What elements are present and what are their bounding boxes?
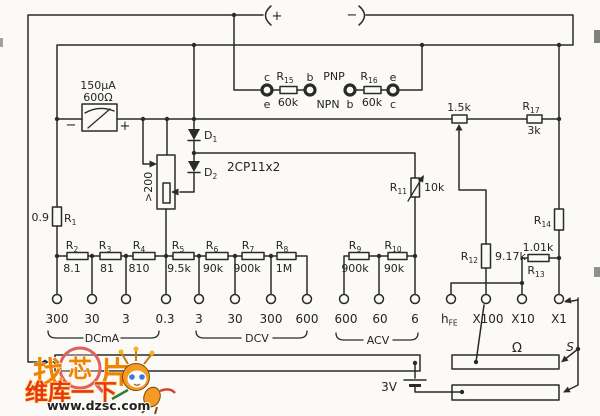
junction-dot (164, 254, 168, 258)
diode-d1-icon (188, 129, 200, 140)
shunt-pot-value: >200 (142, 172, 155, 202)
minus-jack-label: − (347, 8, 358, 23)
terminal-label: X1 (551, 312, 567, 326)
hfe-terminal-label: hFE (441, 312, 458, 328)
meter-needle (88, 109, 110, 128)
socket2-top-label: b (307, 71, 314, 84)
plus-jack-icon (266, 6, 272, 25)
r7-label: R7 (242, 239, 255, 254)
terminal-0p3ma (162, 295, 171, 304)
r17-label: R17 (522, 100, 539, 115)
junction-dot (197, 254, 201, 258)
acv-group-label: ACV (367, 334, 390, 347)
watermark-url: www.dzsc.com (47, 398, 150, 413)
r13-value: 1.01k (523, 241, 554, 254)
terminal-label: 0.3 (155, 312, 174, 326)
r14-label: R14 (534, 214, 551, 229)
terminal-6vac (411, 295, 420, 304)
r6-label: R6 (206, 239, 219, 254)
meter-pos-label: + (120, 119, 131, 134)
r7-value: 900k (233, 262, 261, 275)
terminal-hfe (447, 295, 456, 304)
terminal-label: 300 (46, 312, 69, 326)
r4-value: 810 (129, 262, 150, 275)
terminal-label: 600 (296, 312, 319, 326)
r16-label: R16 (360, 70, 377, 85)
r2-value: 8.1 (63, 262, 81, 275)
ohm-label: Ω (512, 341, 522, 356)
terminal-600vac (340, 295, 349, 304)
acv-brace-right (393, 333, 418, 340)
junction-dot (55, 254, 59, 258)
switch-label: S (566, 340, 574, 354)
terminal-label: 3 (195, 312, 203, 326)
scan-artifact (594, 30, 600, 43)
terminal-300ma (53, 295, 62, 304)
junction-dots (43, 13, 580, 394)
socket4-bottom-label: c (390, 98, 396, 111)
terminal-row (53, 295, 564, 304)
junction-dot (557, 43, 561, 47)
terminal-x100 (482, 295, 491, 304)
diode-model-label: 2CP11x2 (227, 160, 280, 174)
resistor-r13-body (528, 255, 549, 262)
watermark: 找 芯 片 维库一下 www.dzsc.com (25, 347, 175, 415)
r5-value: 9.5k (167, 262, 191, 275)
r2-label: R2 (66, 239, 79, 254)
shunt-pot-element (163, 183, 170, 203)
junction-dot (192, 117, 196, 121)
multimeter-circuit-diagram: + − 150μA 600Ω − + c e R15 60k b PNP NPN… (0, 0, 600, 416)
mascot-antenna-tip (150, 351, 155, 356)
resistor-r17-body (527, 115, 542, 123)
junction-dot (90, 254, 94, 258)
junction-dot (576, 347, 580, 351)
junction-dot (520, 281, 524, 285)
mascot-antenna-tip (119, 350, 124, 355)
r3-label: R3 (99, 239, 112, 254)
terminal-60vac (375, 295, 384, 304)
junction-dot (141, 117, 145, 121)
r9-value: 900k (341, 262, 369, 275)
diode-d2-icon (188, 161, 200, 172)
shunt-pot-body (157, 155, 175, 209)
junction-dot (377, 254, 381, 258)
terminal-x10 (518, 295, 527, 304)
junction-dot (55, 117, 59, 121)
adj-pot-body (452, 115, 467, 123)
junction-dot (557, 256, 561, 260)
terminal-label: 30 (84, 312, 99, 326)
junction-dot (557, 117, 561, 121)
d1-label: D1 (204, 129, 217, 144)
adj-pot-wiper-arrow (456, 124, 463, 131)
r10-label: R10 (384, 239, 401, 254)
socket1-bottom-label: e (264, 98, 271, 111)
socket-b-pnp (345, 85, 355, 95)
r8-label: R8 (276, 239, 289, 254)
r6-value: 90k (203, 262, 224, 275)
resistor-r16-body (364, 87, 381, 94)
r5-label: R5 (172, 239, 185, 254)
resistor-r1-body (53, 207, 62, 226)
junction-dot (269, 254, 273, 258)
junction-dot (413, 361, 417, 365)
junction-dot (233, 254, 237, 258)
r11-label: R11 (390, 181, 407, 196)
watermark-char2: 芯 (68, 355, 92, 383)
mascot-eye (139, 374, 145, 380)
socket-ce (262, 85, 272, 95)
dcma-brace-left (48, 331, 83, 338)
r4-label: R4 (133, 239, 146, 254)
socket-ec (388, 85, 398, 95)
terminal-label: 60 (372, 312, 387, 326)
r15-value: 60k (278, 96, 299, 109)
terminal-label: X10 (511, 312, 535, 326)
shunt-pot-wiper-arrow (150, 161, 158, 168)
terminal-label: X100 (472, 312, 503, 326)
scanned-schematic-page: + − 150μA 600Ω − + c e R15 60k b PNP NPN… (0, 0, 600, 416)
r1-value: 0.9 (32, 211, 50, 224)
adj-pot-value: 1.5k (447, 101, 471, 114)
scan-artifact (0, 38, 3, 47)
dcma-group-label: DCmA (85, 332, 120, 345)
socket-b-npn (305, 85, 315, 95)
dcv-group-label: DCV (245, 332, 269, 345)
r13-label: R13 (527, 264, 544, 279)
r12-label: R12 (461, 250, 478, 265)
npn-label: NPN (316, 98, 339, 111)
r10-value: 90k (384, 262, 405, 275)
mascot-antenna-tip (134, 347, 139, 352)
terminal-300v (267, 295, 276, 304)
terminal-x1 (555, 295, 564, 304)
socket1-top-label: c (264, 71, 270, 84)
minus-jack-icon (359, 6, 365, 25)
junction-dot (192, 43, 196, 47)
switch-wiper-arrow (564, 297, 571, 303)
bottom-slide-element (452, 385, 559, 400)
terminal-label: 600 (335, 312, 358, 326)
r1-label: R1 (64, 212, 77, 227)
r3-value: 81 (100, 262, 114, 275)
terminal-label: 6 (411, 312, 419, 326)
terminal-30ma (88, 295, 97, 304)
terminal-600v (303, 295, 312, 304)
r15-label: R15 (276, 70, 293, 85)
r11-value: 10k (424, 181, 445, 194)
mascot-ribbon (160, 389, 175, 393)
r8-value: 1M (276, 262, 293, 275)
meter-neg-label: − (66, 118, 77, 133)
terminal-3v (195, 295, 204, 304)
junction-dot (165, 117, 169, 121)
acv-brace-left (336, 333, 363, 340)
junction-dot (124, 254, 128, 258)
terminal-3ma (122, 295, 131, 304)
mascot-leg (155, 407, 157, 414)
d2-label: D2 (204, 166, 217, 181)
junction-dot (192, 151, 196, 155)
terminal-label: 3 (122, 312, 130, 326)
r16-value: 60k (362, 96, 383, 109)
mascot-antenna (144, 355, 151, 364)
mascot-eye (129, 374, 135, 380)
junction-dot (460, 390, 464, 394)
r17-value: 3k (527, 124, 541, 137)
pnp-label: PNP (323, 70, 345, 83)
resistor-r14-body (555, 209, 564, 230)
junction-dot (232, 13, 236, 17)
junction-dot (420, 43, 424, 47)
dcv-brace-right (273, 331, 307, 338)
terminal-30v (231, 295, 240, 304)
battery-label: 3V (381, 380, 398, 394)
socket4-top-label: e (390, 71, 397, 84)
dcv-brace-left (196, 331, 241, 338)
meter-resistance-label: 600Ω (83, 91, 112, 104)
dcma-brace-right (121, 331, 159, 338)
terminal-label: 30 (227, 312, 242, 326)
scan-artifact (594, 267, 600, 277)
junction-dot (413, 254, 417, 258)
plus-jack-label: + (272, 9, 283, 24)
terminal-label: 300 (260, 312, 283, 326)
socket3-bottom-label: b (347, 98, 354, 111)
resistor-r15-body (280, 87, 297, 94)
junction-dot (474, 360, 478, 364)
meter-scale-arc (85, 108, 114, 113)
r9-label: R9 (349, 239, 362, 254)
resistor-r12-body (482, 244, 491, 268)
ohm-slide-element (452, 355, 559, 369)
